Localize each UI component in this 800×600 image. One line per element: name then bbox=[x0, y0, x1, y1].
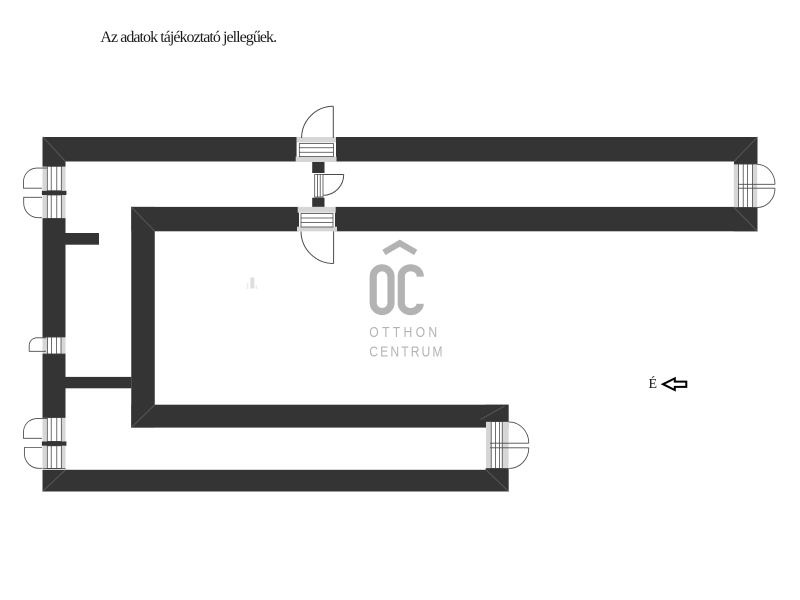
svg-text:Az adatok tájékoztató jellegűe: Az adatok tájékoztató jellegűek. bbox=[100, 29, 276, 46]
svg-text:OTTHON: OTTHON bbox=[369, 324, 440, 340]
svg-text:É: É bbox=[649, 375, 658, 392]
svg-text:CENTRUM: CENTRUM bbox=[369, 344, 444, 360]
